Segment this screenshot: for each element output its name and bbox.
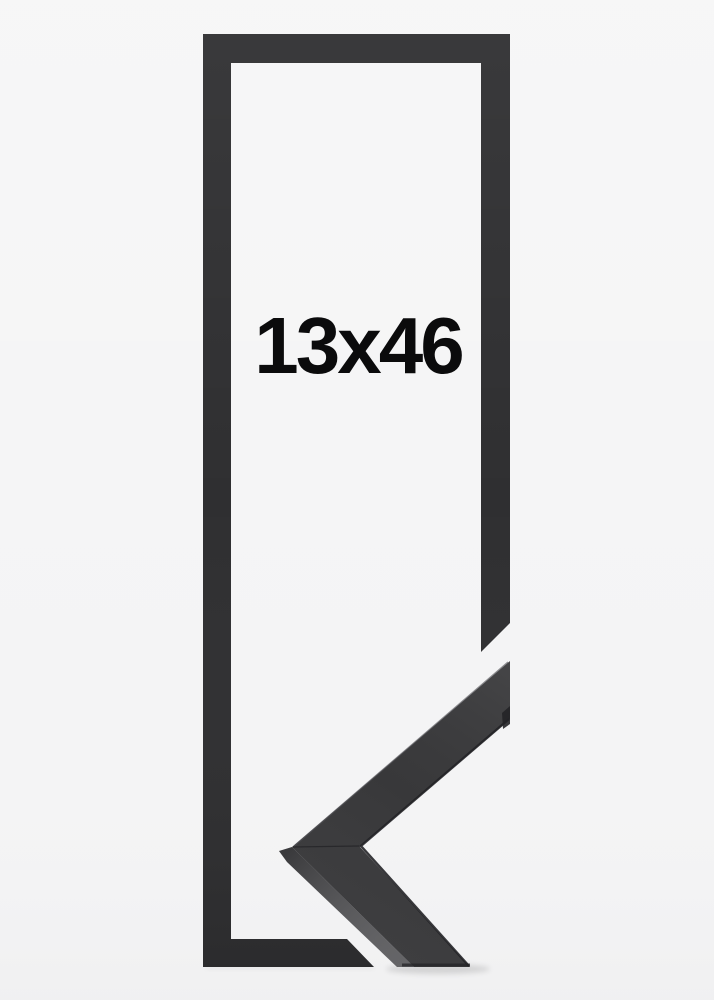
size-label: 13x46 — [254, 301, 462, 390]
frame-bottom-contact-shadow — [206, 966, 374, 969]
frame-product-graphic: 13x46 — [0, 0, 714, 1000]
product-image: 13x46 — [0, 0, 714, 1000]
